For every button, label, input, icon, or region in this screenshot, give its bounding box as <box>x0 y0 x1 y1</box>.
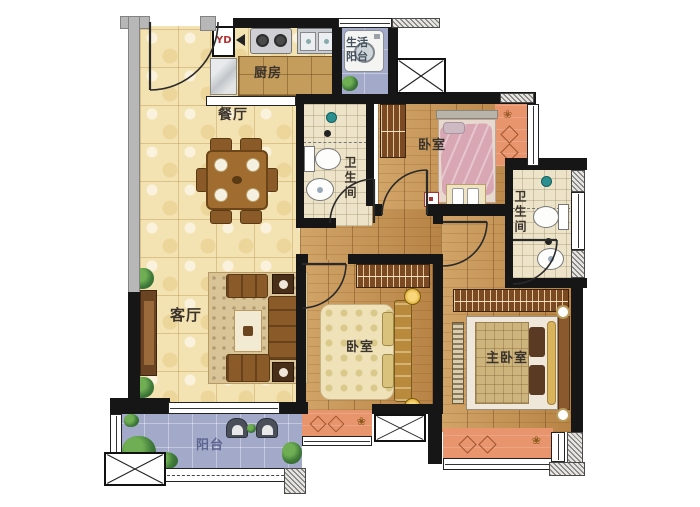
room-label-bedroom-top: 卧室 <box>418 134 446 153</box>
shower-head-icon <box>541 176 552 187</box>
side-table <box>272 274 294 294</box>
bay-flower-decor: ❀ <box>503 108 517 122</box>
bay-cushion <box>328 416 345 433</box>
armchair <box>226 274 268 298</box>
bed-headboard <box>394 300 412 402</box>
nightstand-master <box>556 305 570 319</box>
drain <box>317 187 323 193</box>
ac-x-mark <box>376 416 424 440</box>
wardrobe-bedroom-middle <box>356 264 430 288</box>
centerpiece <box>232 176 242 184</box>
wall-bath-middle-bottom <box>296 218 336 228</box>
wall-kitchen-bath-divider <box>296 94 398 104</box>
burner-icon <box>274 34 287 47</box>
bay-window-bedroom-middle: ❀ <box>302 410 372 438</box>
window-master-bay <box>443 458 553 470</box>
wall-balcony-right-stub <box>280 402 308 414</box>
hatch-block <box>549 462 585 476</box>
ac-platform-middle <box>374 414 426 442</box>
room-label-master-bedroom: 主卧室 <box>486 347 528 366</box>
wall-ac-divider <box>428 404 442 464</box>
duct-label: YD <box>216 35 232 46</box>
drain <box>324 39 329 44</box>
room-label-bathroom-middle: 卫生间 <box>342 156 359 222</box>
duct-door-icon <box>236 34 245 46</box>
decor-tray <box>243 326 253 336</box>
hatch-block <box>284 468 306 494</box>
room-label-kitchen: 厨房 <box>254 62 282 81</box>
drain <box>306 39 311 44</box>
wall-bath-middle-right <box>366 100 374 206</box>
chair-cushion <box>262 425 273 435</box>
bed-headboard <box>558 316 570 410</box>
bay-window-bedroom-top: ❀ <box>495 104 527 166</box>
sink-basin <box>300 32 316 51</box>
balcony-railing <box>164 468 302 482</box>
toilet-icon-middle <box>315 148 341 170</box>
wall-master-left <box>433 262 443 414</box>
burner-icon <box>256 34 269 47</box>
decor-dot <box>429 197 433 201</box>
window-bedroom-middle-bay <box>302 436 372 446</box>
wardrobe-master <box>453 289 569 312</box>
bay-cushion <box>500 125 518 143</box>
side-table <box>272 362 294 382</box>
bay-cushion <box>458 435 476 453</box>
bedside-lamp <box>404 288 421 305</box>
bay-cushion <box>310 416 327 433</box>
bed-headboard <box>436 110 498 119</box>
bed-end-bench <box>452 322 464 404</box>
plate <box>246 188 260 202</box>
bay-window-master: ❀ <box>443 428 553 460</box>
floor-plan: ❀ ❀ ❀ YD <box>0 0 700 507</box>
hatch-block <box>571 170 585 192</box>
room-label-utility-balcony: 生活阳台 <box>346 36 372 64</box>
hatch-block <box>571 250 585 278</box>
plant-balcony <box>247 424 256 433</box>
toilet-icon-right <box>533 206 559 228</box>
ac-x-mark <box>398 60 444 92</box>
wall-balcony-left-stub <box>140 402 168 414</box>
coffee-table <box>234 310 262 352</box>
wall-master-left-stub <box>433 216 443 224</box>
drain <box>548 256 554 262</box>
bolster-pillow <box>547 321 556 405</box>
plate <box>246 158 260 172</box>
ac-x-mark <box>106 454 164 484</box>
bay-cushion <box>478 435 496 453</box>
pillow <box>529 327 545 357</box>
wall-cap-entry <box>200 16 216 31</box>
plate <box>214 158 228 172</box>
wall-bedroom-middle-left <box>296 254 306 414</box>
kitchen-counter <box>238 56 336 96</box>
wall-bath-right-bottom <box>505 278 587 288</box>
wall-master-right <box>571 288 583 432</box>
wall-bath-middle-left <box>296 100 304 226</box>
balcony-chair <box>226 418 248 438</box>
wall-utility-left <box>332 18 342 100</box>
decor-vase <box>467 188 479 205</box>
floor-drain-icon <box>324 130 331 137</box>
room-label-balcony: 阳台 <box>196 434 224 453</box>
tv-cabinet <box>140 290 157 376</box>
sliding-door-balcony <box>168 402 280 414</box>
chair-cushion <box>232 425 243 435</box>
room-label-bedroom-middle: 卧室 <box>346 336 374 355</box>
window-bedroom-top-bay <box>527 104 539 166</box>
tv-icon <box>144 301 154 365</box>
wardrobe-bedroom-top <box>380 104 406 158</box>
room-label-dining: 餐厅 <box>218 104 248 124</box>
ac-platform-top <box>396 58 446 94</box>
decor-vase <box>452 188 464 205</box>
dining-table <box>206 150 268 210</box>
washer-panel <box>374 34 380 39</box>
bay-flower-decor: ❀ <box>357 415 366 428</box>
window-utility-top <box>338 18 392 28</box>
dining-chair <box>240 210 262 224</box>
wall-left-lower <box>128 292 140 404</box>
balcony-chair <box>256 418 278 438</box>
pillow <box>443 122 465 134</box>
toilet-tank <box>304 146 315 172</box>
wall-bedroom-middle-bottom <box>372 404 434 414</box>
armchair <box>226 354 270 382</box>
fridge-icon <box>210 58 237 95</box>
decor-bowl <box>279 280 288 289</box>
wall-corridor-bottom-b <box>348 254 443 264</box>
washbasin-icon-right <box>537 248 564 270</box>
hatch-block <box>500 93 534 103</box>
room-label-bathroom-right: 卫生间 <box>512 190 529 256</box>
pillow <box>382 354 394 388</box>
stove-icon <box>250 28 292 54</box>
shower-head-icon <box>326 112 337 123</box>
window-corner <box>551 432 565 462</box>
kitchen-sink-icon <box>297 28 336 54</box>
wall-kitchen-top <box>233 18 337 28</box>
bay-flower-decor: ❀ <box>532 434 541 447</box>
dining-chair <box>210 210 232 224</box>
wall-bedroom-bottom-b <box>427 204 512 216</box>
toilet-tank <box>558 204 569 230</box>
floor-drain-icon <box>545 238 552 245</box>
decor-bowl <box>279 368 288 377</box>
pillow <box>529 365 545 395</box>
ac-platform-bottom-left <box>104 452 166 486</box>
pillow <box>382 312 394 346</box>
wall-bath-right-top <box>505 158 587 170</box>
shower-area-middle <box>303 101 367 143</box>
washbasin-icon-middle <box>306 178 334 201</box>
window-bath-right <box>571 192 585 250</box>
plate <box>214 188 228 202</box>
hatch-block <box>392 18 440 28</box>
nightstand-master <box>556 408 570 422</box>
wall-left <box>128 16 140 294</box>
room-label-living: 客厅 <box>170 304 202 325</box>
wall-bedroom-bottom-a <box>374 204 382 216</box>
